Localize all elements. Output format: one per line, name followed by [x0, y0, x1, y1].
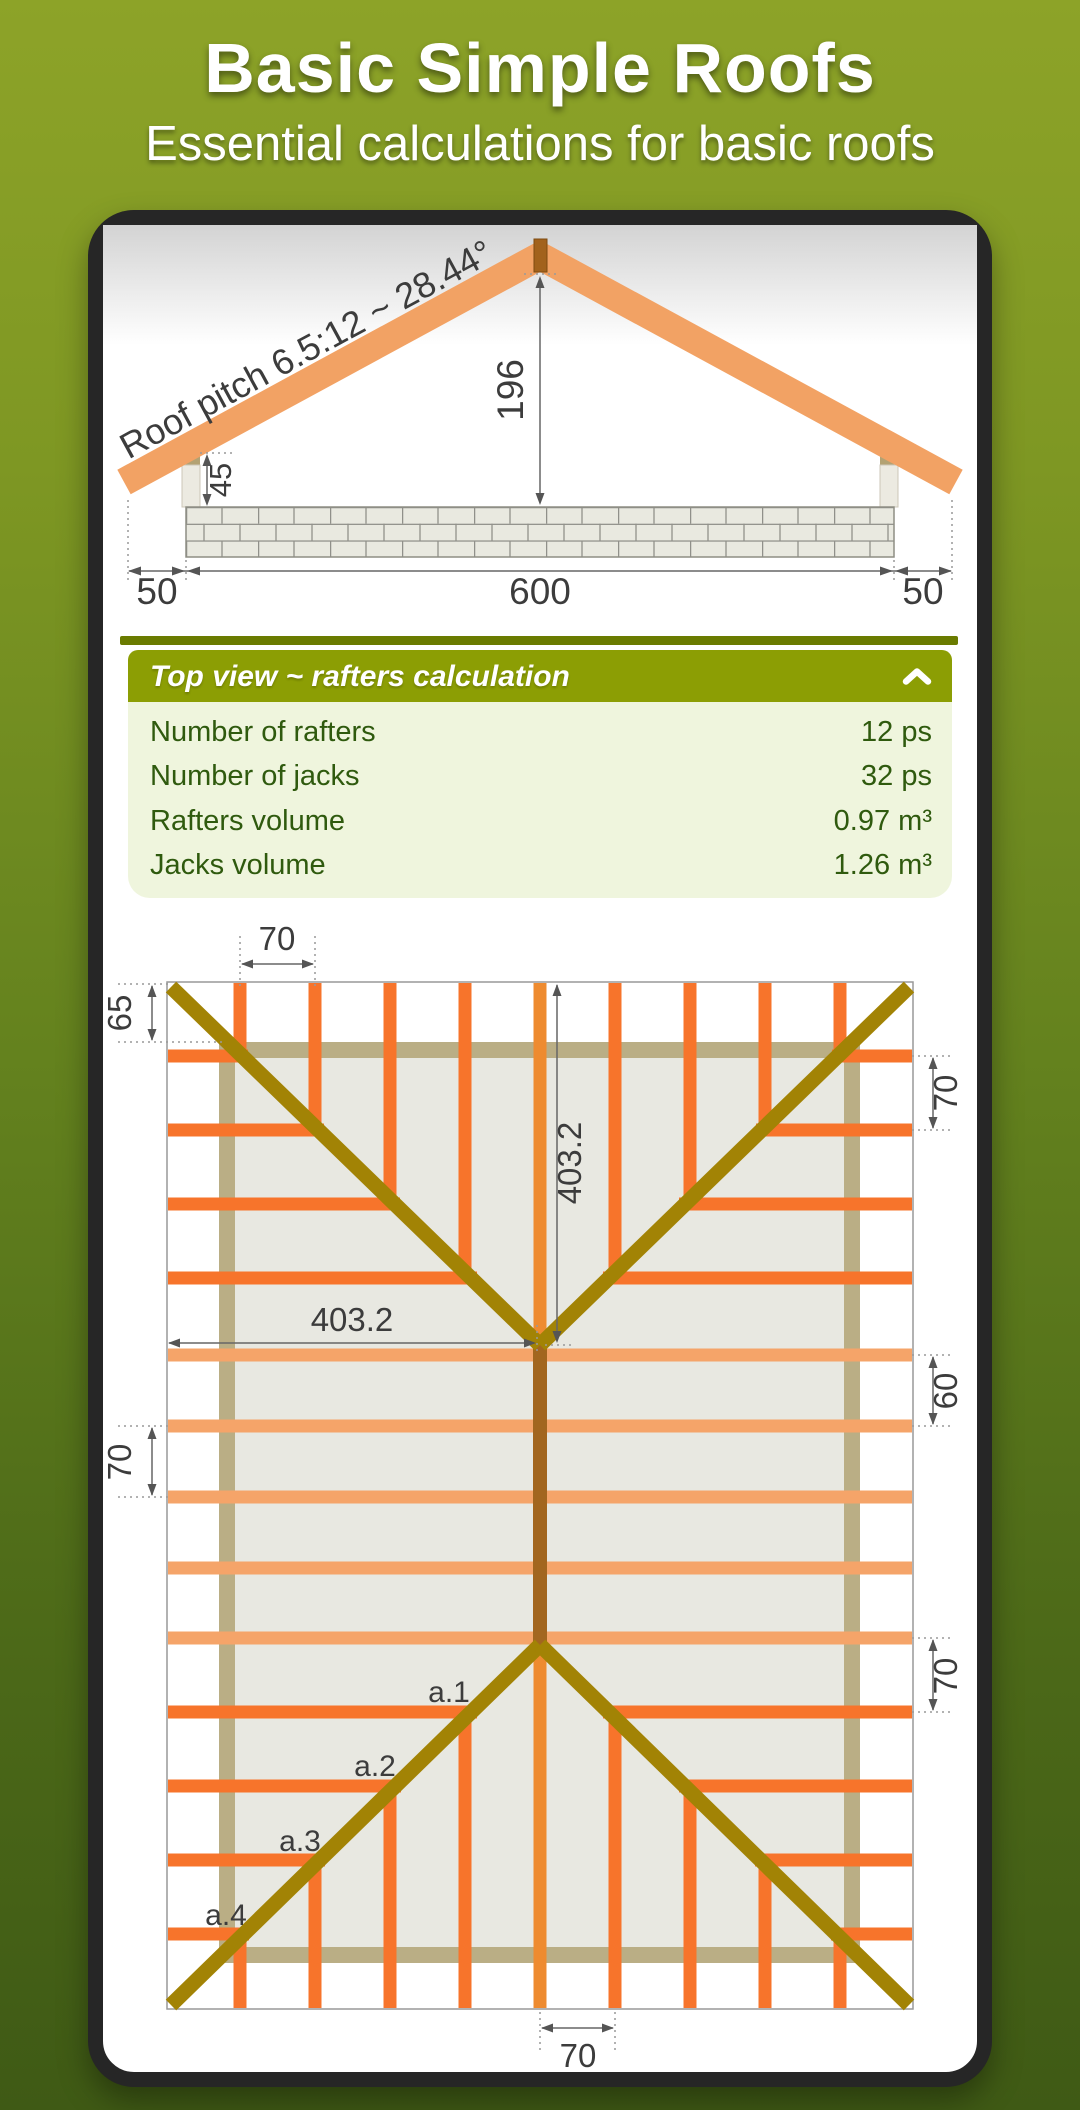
svg-text:45: 45: [203, 463, 238, 497]
roof-top-view-diagram: 70 65 403.2 403.2: [103, 900, 977, 2072]
svg-text:50: 50: [136, 571, 177, 612]
svg-text:196: 196: [490, 359, 531, 421]
result-label: Number of rafters: [150, 716, 376, 749]
result-row: Number of rafters 12 ps: [150, 710, 932, 755]
svg-text:70: 70: [103, 1444, 138, 1481]
svg-text:403.2: 403.2: [311, 1301, 394, 1338]
dim-spacing-left: 70: [103, 1426, 168, 1497]
dim-post-height: 45: [200, 453, 238, 506]
result-value: 0.97 m³: [834, 805, 932, 838]
result-row: Rafters volume 0.97 m³: [150, 799, 932, 844]
svg-text:600: 600: [509, 571, 571, 612]
result-row: Jacks volume 1.26 m³: [150, 844, 932, 889]
dim-spacing-right-top: 70: [912, 1056, 964, 1130]
svg-text:70: 70: [259, 920, 296, 957]
result-value: 32 ps: [861, 760, 932, 793]
result-label: Rafters volume: [150, 805, 345, 838]
app-subtitle: Essential calculations for basic roofs: [0, 116, 1080, 172]
svg-text:70: 70: [927, 1658, 964, 1695]
result-value: 12 ps: [861, 716, 932, 749]
svg-text:60: 60: [927, 1373, 964, 1410]
title-banner: Basic Simple Roofs Essential calculation…: [0, 0, 1080, 172]
app-title: Basic Simple Roofs: [0, 28, 1080, 108]
result-label: Number of jacks: [150, 760, 360, 793]
jack-label: a.4: [205, 1899, 247, 1932]
dim-spacing-right-middle: 60: [912, 1355, 964, 1426]
dim-spacing-right-bottom: 70: [912, 1638, 964, 1712]
brick-wall: [186, 507, 894, 557]
panel-header[interactable]: Top view ~ rafters calculation: [128, 650, 952, 702]
results-panel: Top view ~ rafters calculation Number of…: [128, 650, 952, 898]
svg-text:65: 65: [103, 995, 138, 1032]
result-value: 1.26 m³: [834, 849, 932, 882]
dim-spacing-bottom: 70: [540, 2012, 615, 2072]
jack-label: a.1: [428, 1676, 470, 1709]
section-divider: [120, 636, 958, 645]
svg-text:70: 70: [560, 2037, 597, 2072]
jack-label: a.3: [279, 1825, 321, 1858]
content-card: Roof pitch 6.5:12 ~ 28.44° 196 45: [88, 210, 992, 2087]
svg-text:50: 50: [902, 571, 943, 612]
panel-title: Top view ~ rafters calculation: [128, 650, 952, 703]
dim-spacing-top: 70: [240, 920, 315, 986]
chevron-up-icon[interactable]: [902, 668, 932, 685]
panel-body: Number of rafters 12 ps Number of jacks …: [128, 702, 952, 898]
result-row: Number of jacks 32 ps: [150, 755, 932, 800]
svg-text:403.2: 403.2: [551, 1122, 588, 1205]
ridge-post: [534, 239, 547, 272]
roof-cross-section-diagram: Roof pitch 6.5:12 ~ 28.44° 196 45: [103, 225, 977, 632]
jack-label: a.2: [354, 1750, 396, 1783]
svg-text:70: 70: [927, 1075, 964, 1112]
result-label: Jacks volume: [150, 849, 326, 882]
